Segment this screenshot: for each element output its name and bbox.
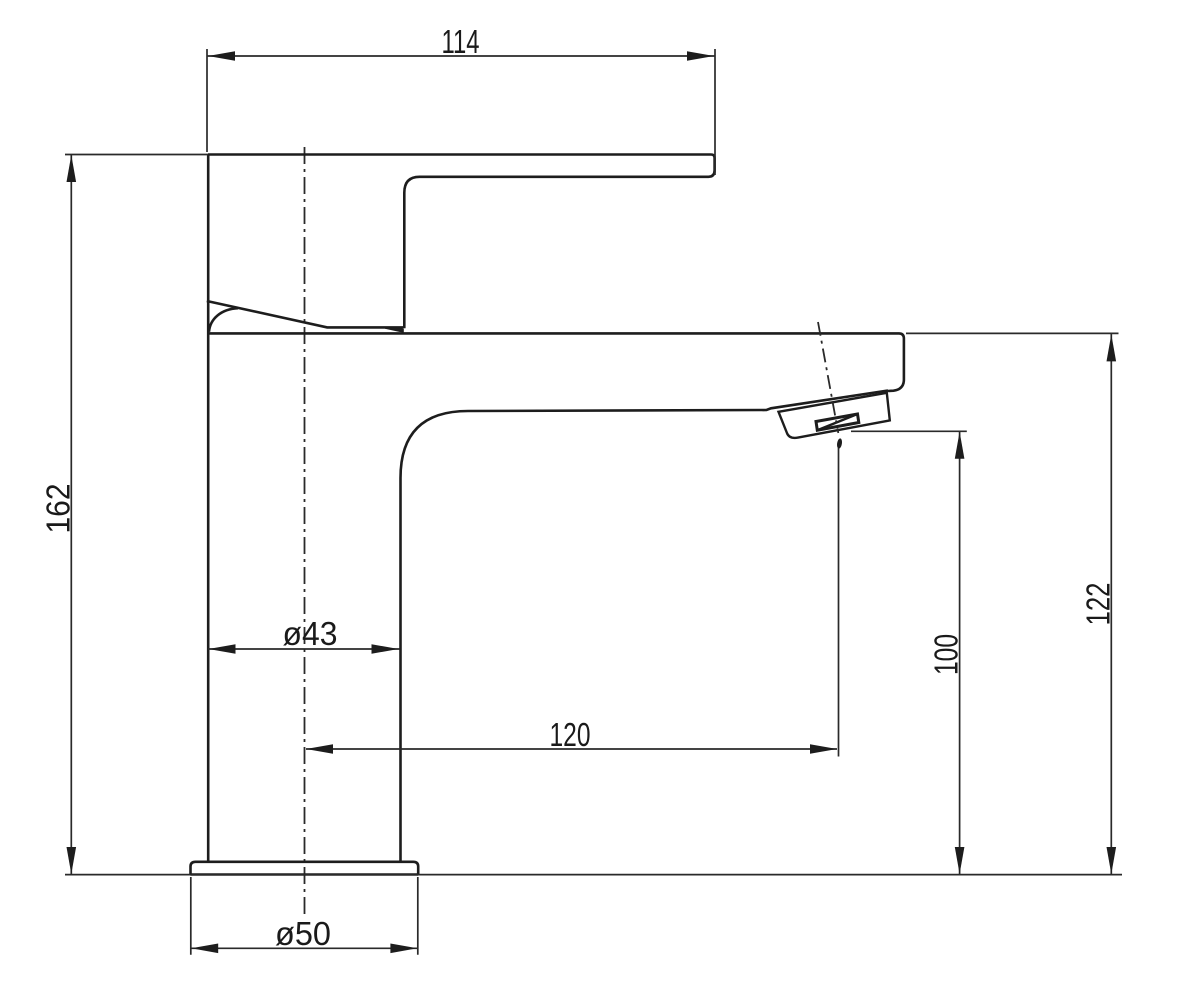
svg-text:100: 100 [928, 634, 965, 675]
svg-text:120: 120 [550, 716, 591, 753]
svg-text:ø50: ø50 [275, 915, 331, 952]
svg-text:114: 114 [442, 23, 480, 60]
svg-text:162: 162 [40, 484, 77, 534]
svg-text:122: 122 [1080, 583, 1117, 626]
svg-text:ø43: ø43 [283, 615, 338, 652]
